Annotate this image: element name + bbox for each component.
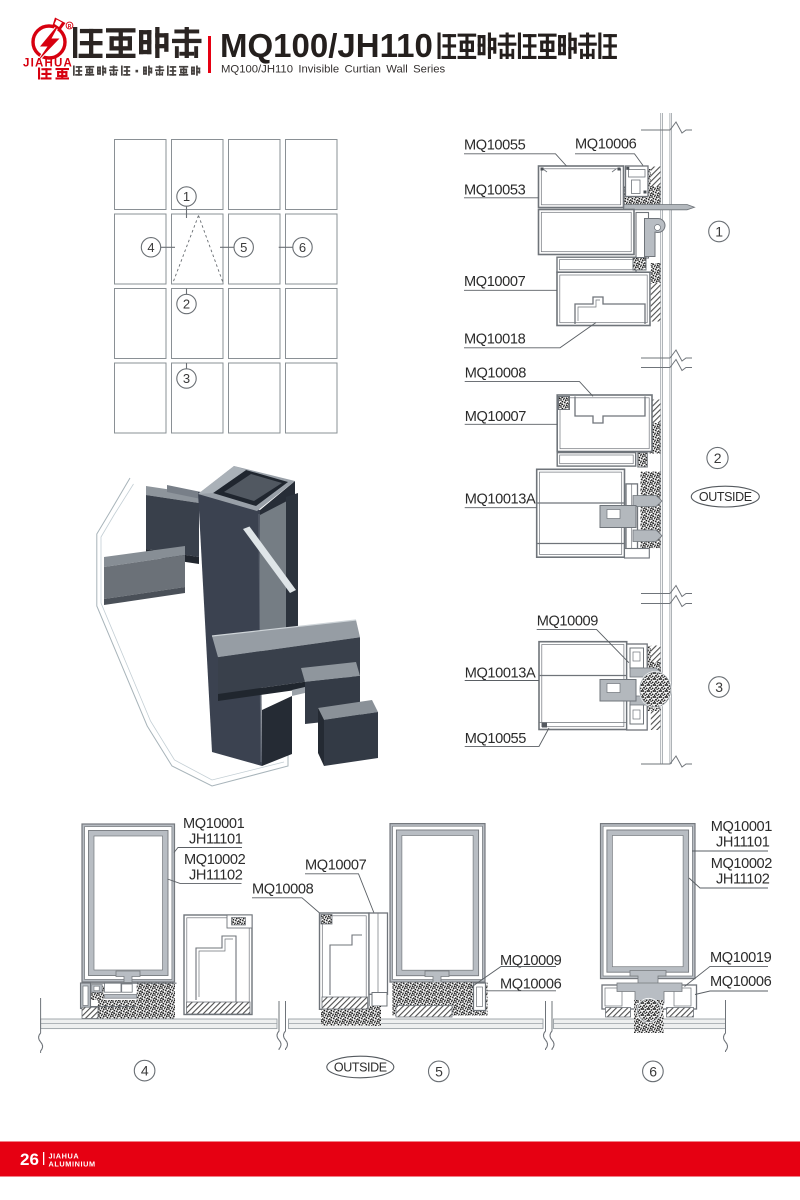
svg-text:OUTSIDE: OUTSIDE bbox=[699, 490, 752, 504]
svg-text:3: 3 bbox=[715, 679, 723, 695]
svg-text:MQ10018: MQ10018 bbox=[464, 332, 526, 348]
svg-text:JH11101: JH11101 bbox=[716, 835, 770, 851]
svg-text:MQ10002: MQ10002 bbox=[711, 856, 773, 872]
svg-text:5: 5 bbox=[240, 240, 247, 255]
svg-text:2: 2 bbox=[714, 450, 722, 466]
svg-text:26: 26 bbox=[20, 1150, 39, 1169]
svg-text:4: 4 bbox=[141, 1063, 149, 1079]
svg-text:OUTSIDE: OUTSIDE bbox=[334, 1061, 387, 1075]
svg-text:5: 5 bbox=[435, 1063, 443, 1079]
svg-text:MQ10007: MQ10007 bbox=[305, 858, 367, 874]
svg-text:3: 3 bbox=[183, 371, 190, 386]
svg-text:MQ10007: MQ10007 bbox=[464, 274, 526, 290]
svg-text:1: 1 bbox=[715, 224, 723, 240]
svg-text:MQ10013A: MQ10013A bbox=[465, 666, 536, 682]
svg-text:MQ10013A: MQ10013A bbox=[465, 491, 536, 507]
svg-text:MQ100/JH110: MQ100/JH110 bbox=[220, 27, 433, 64]
svg-text:MQ10006: MQ10006 bbox=[575, 137, 637, 153]
svg-text:6: 6 bbox=[649, 1063, 657, 1079]
svg-text:MQ10002: MQ10002 bbox=[184, 852, 246, 868]
svg-text:MQ10009: MQ10009 bbox=[537, 613, 599, 629]
svg-text:MQ10055: MQ10055 bbox=[465, 731, 527, 747]
svg-text:JH11102: JH11102 bbox=[716, 872, 770, 888]
svg-text:JH11102: JH11102 bbox=[189, 868, 243, 884]
svg-text:MQ10001: MQ10001 bbox=[183, 816, 245, 832]
svg-text:MQ10055: MQ10055 bbox=[464, 138, 526, 154]
svg-text:1: 1 bbox=[183, 189, 190, 204]
svg-text:MQ10001: MQ10001 bbox=[711, 819, 773, 835]
svg-text:MQ10019: MQ10019 bbox=[710, 950, 772, 966]
svg-text:4: 4 bbox=[147, 240, 154, 255]
svg-text:MQ10008: MQ10008 bbox=[252, 882, 314, 898]
svg-text:MQ10053: MQ10053 bbox=[464, 183, 526, 199]
svg-text:MQ100/JH110 Invisible Curtian: MQ100/JH110 Invisible Curtian Wall Serie… bbox=[221, 64, 446, 76]
svg-text:JH11101: JH11101 bbox=[189, 832, 243, 848]
svg-text:MQ10008: MQ10008 bbox=[465, 365, 527, 381]
svg-text:R: R bbox=[68, 24, 72, 30]
svg-text:ALUMINIUM: ALUMINIUM bbox=[49, 1160, 96, 1169]
svg-text:2: 2 bbox=[183, 297, 190, 312]
svg-text:JIAHUA: JIAHUA bbox=[23, 58, 73, 70]
svg-text:MQ10006: MQ10006 bbox=[500, 977, 562, 993]
svg-text:MQ10007: MQ10007 bbox=[465, 409, 527, 425]
svg-text:MQ10006: MQ10006 bbox=[710, 974, 772, 990]
svg-text:6: 6 bbox=[299, 240, 306, 255]
